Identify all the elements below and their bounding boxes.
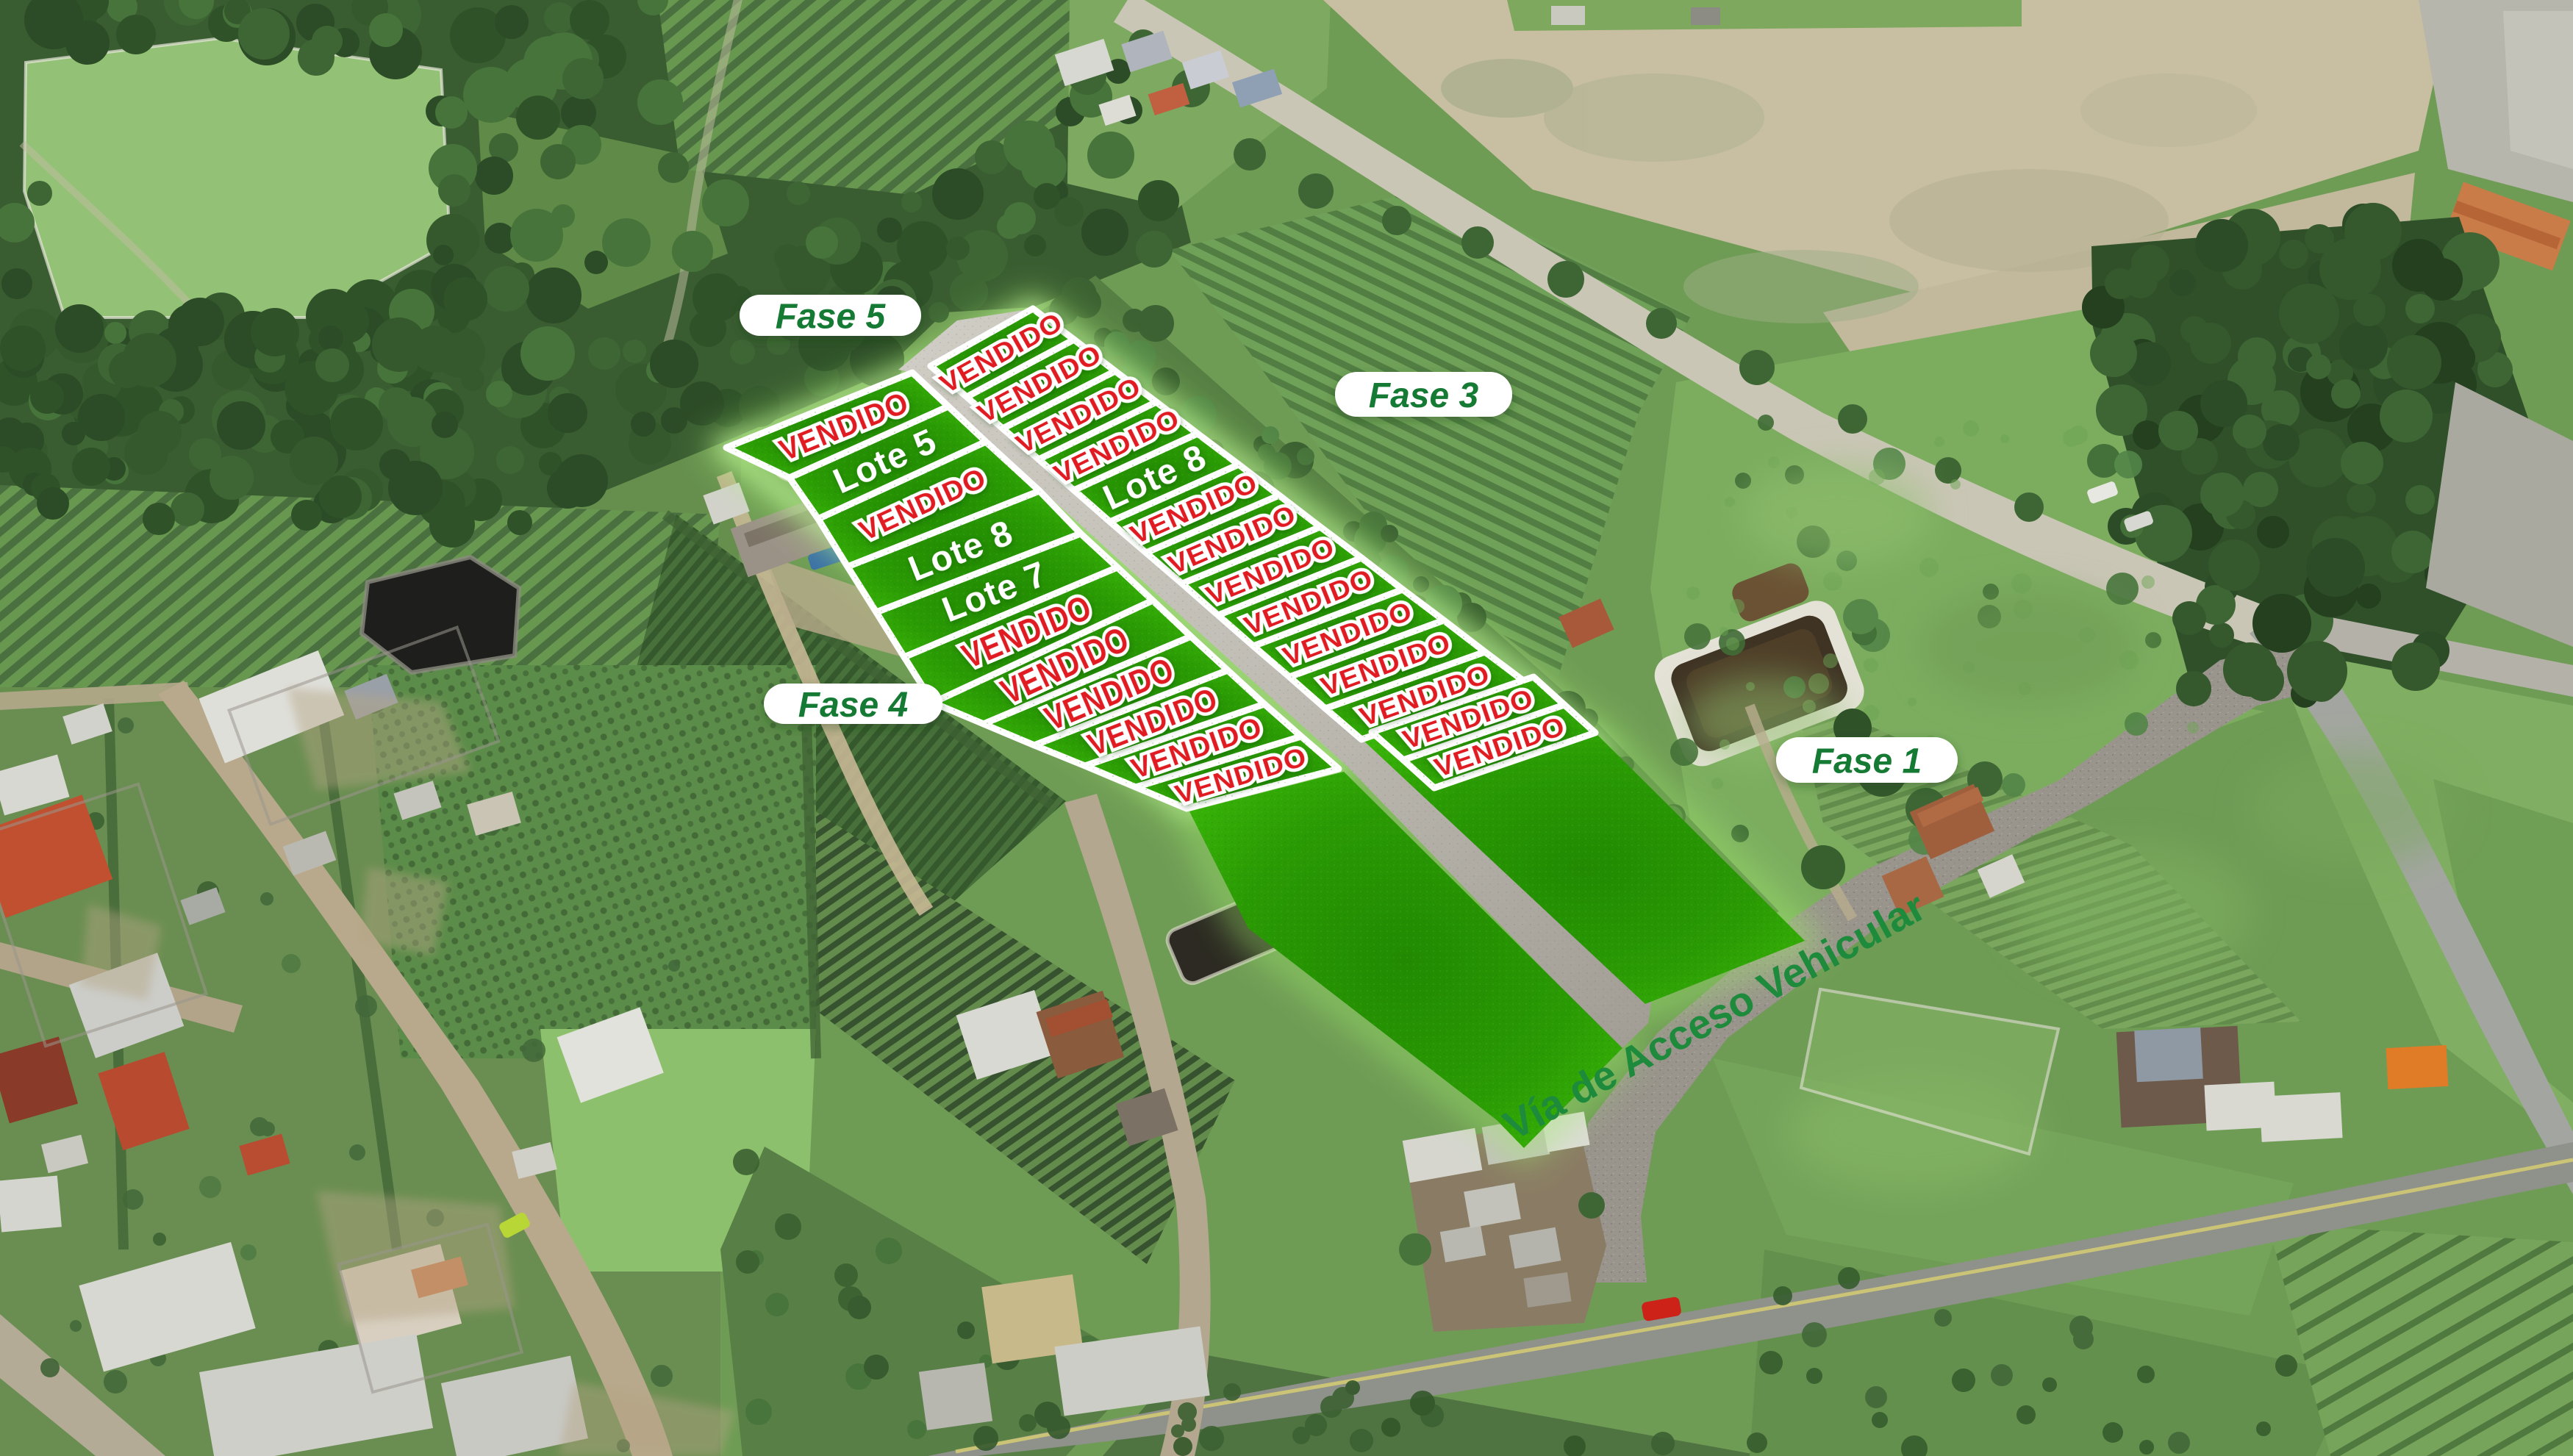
svg-text:Fase 1: Fase 1 (1812, 742, 1922, 781)
svg-text:Fase 5: Fase 5 (776, 298, 887, 337)
svg-text:Fase 4: Fase 4 (798, 686, 908, 725)
svg-text:Fase 3: Fase 3 (1369, 376, 1479, 415)
